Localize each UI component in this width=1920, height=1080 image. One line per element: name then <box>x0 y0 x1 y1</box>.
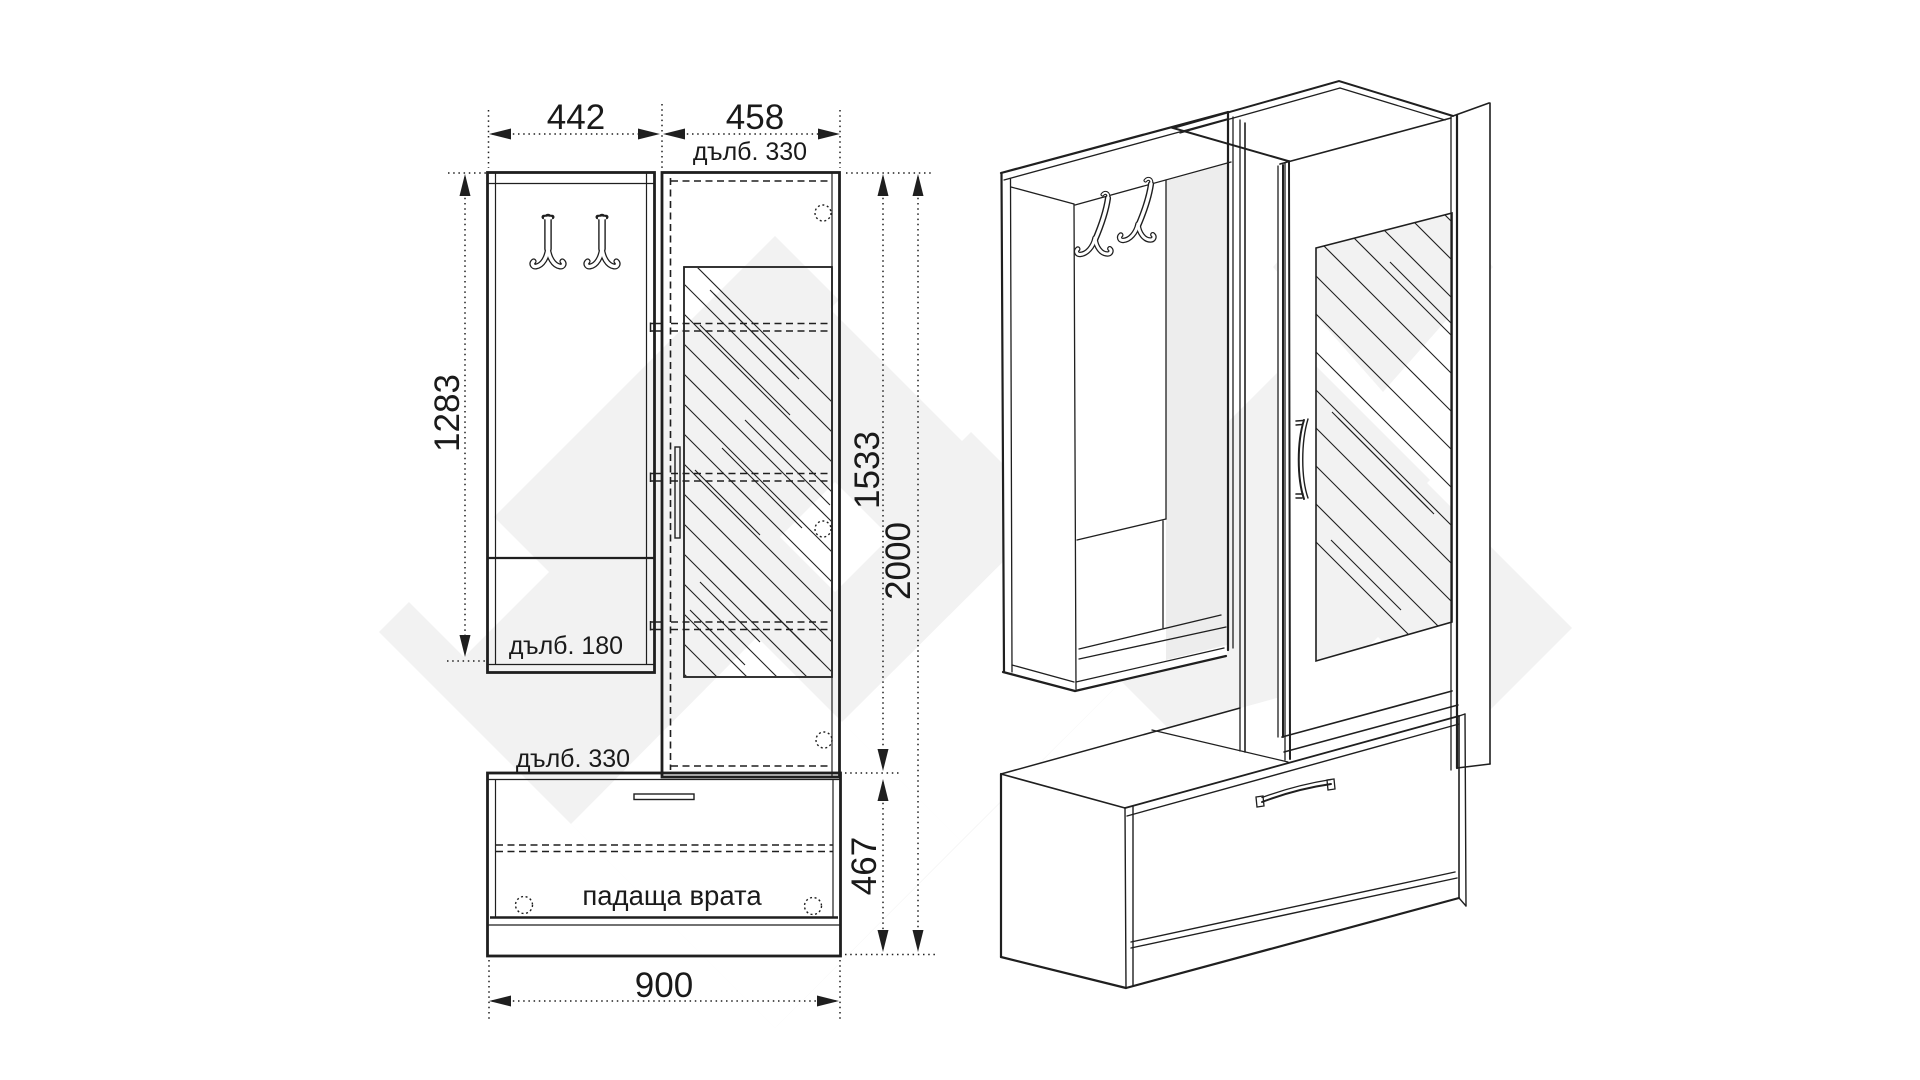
svg-text:дълб. 180: дълб. 180 <box>509 632 623 660</box>
svg-text:2000: 2000 <box>879 522 918 600</box>
svg-text:1533: 1533 <box>848 431 887 509</box>
svg-text:467: 467 <box>845 837 884 895</box>
svg-text:дълб. 330: дълб. 330 <box>693 138 807 166</box>
svg-text:падаща врата: падаща врата <box>582 880 762 911</box>
svg-text:дълб. 330: дълб. 330 <box>516 745 630 773</box>
svg-text:1283: 1283 <box>428 374 467 452</box>
svg-text:900: 900 <box>635 966 693 1005</box>
svg-text:442: 442 <box>547 98 605 137</box>
svg-text:458: 458 <box>726 98 784 137</box>
